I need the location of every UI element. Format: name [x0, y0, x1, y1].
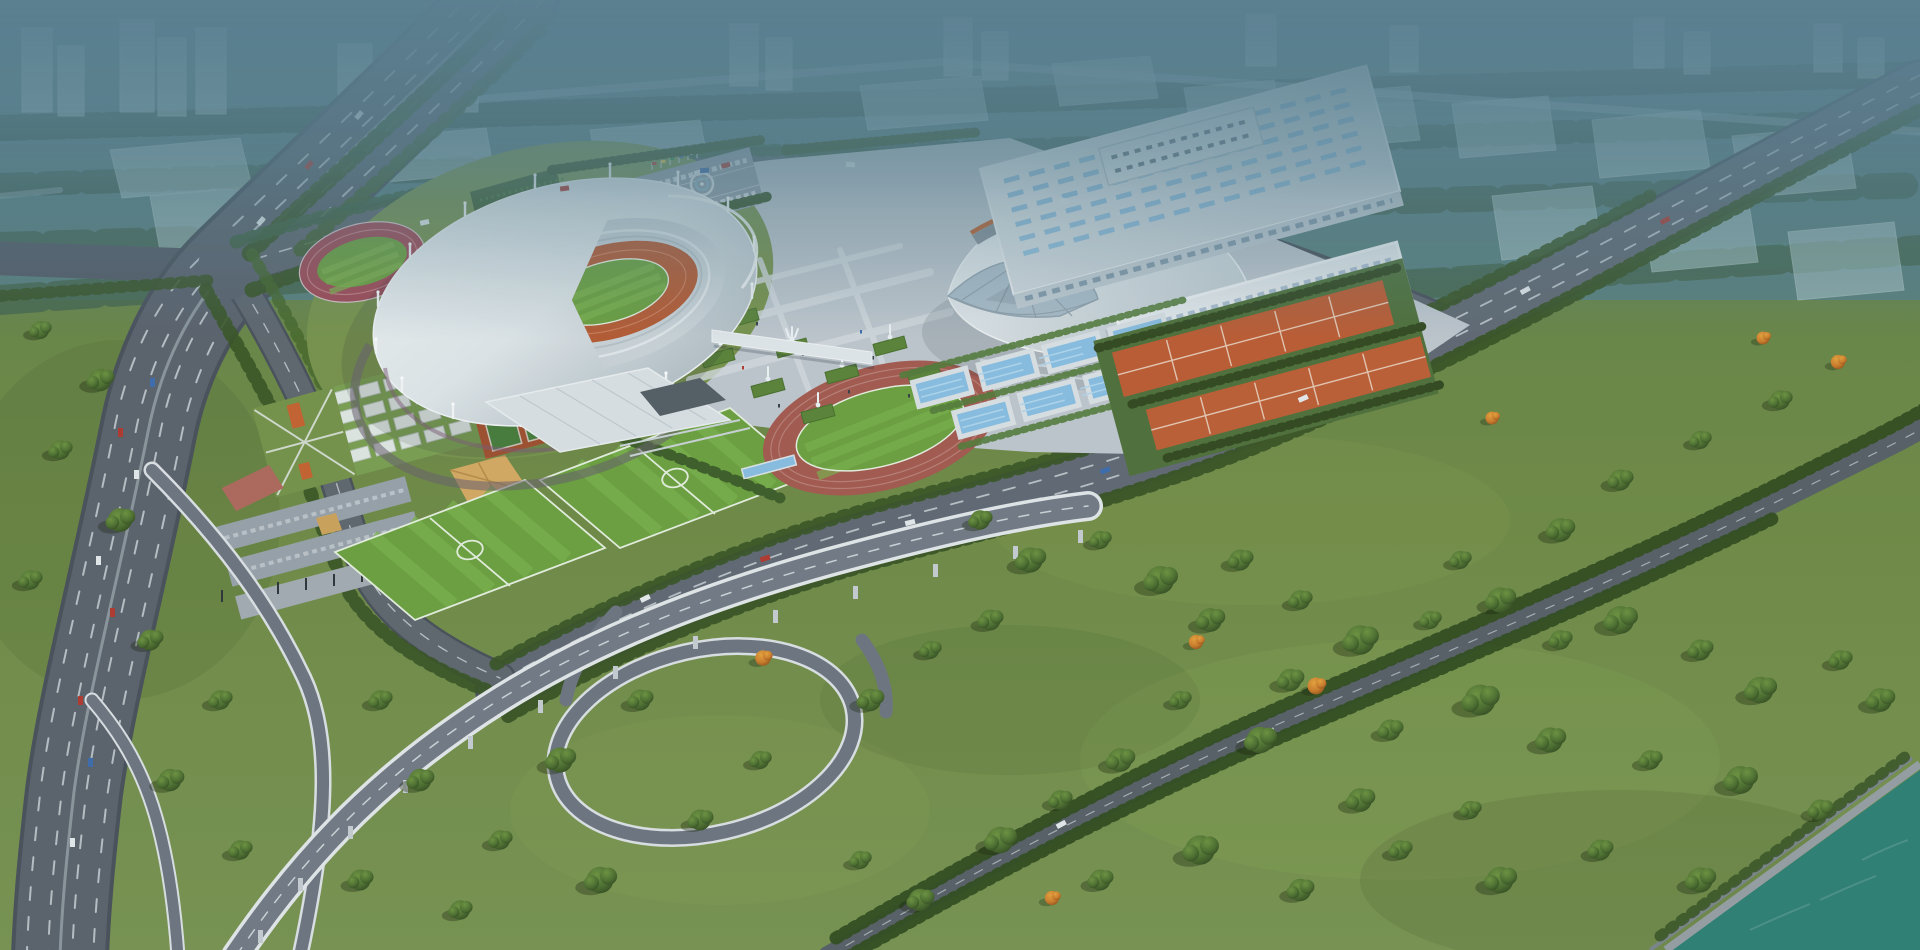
aerial-render	[0, 0, 1920, 950]
scene-canvas	[0, 0, 1920, 950]
color-grade	[0, 0, 1920, 950]
